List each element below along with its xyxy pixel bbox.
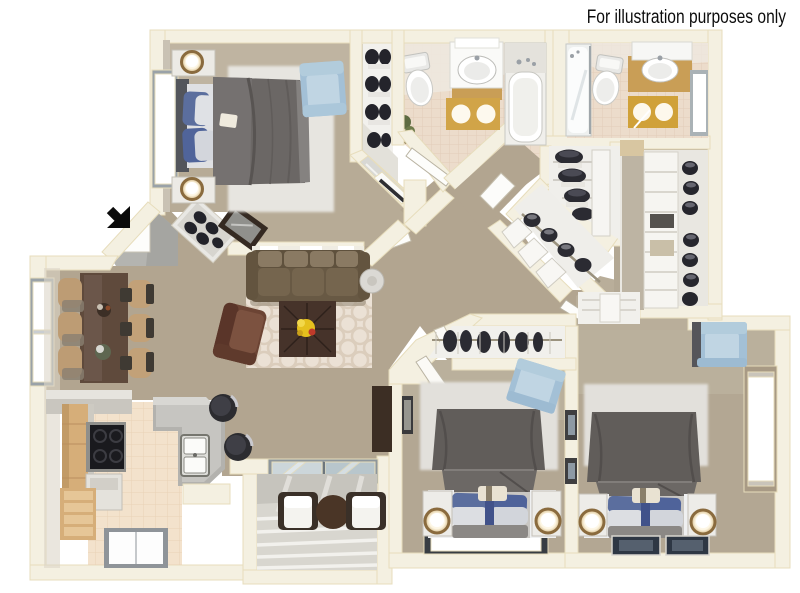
svg-text:For illustration purposes only: For illustration purposes only [587,5,786,27]
